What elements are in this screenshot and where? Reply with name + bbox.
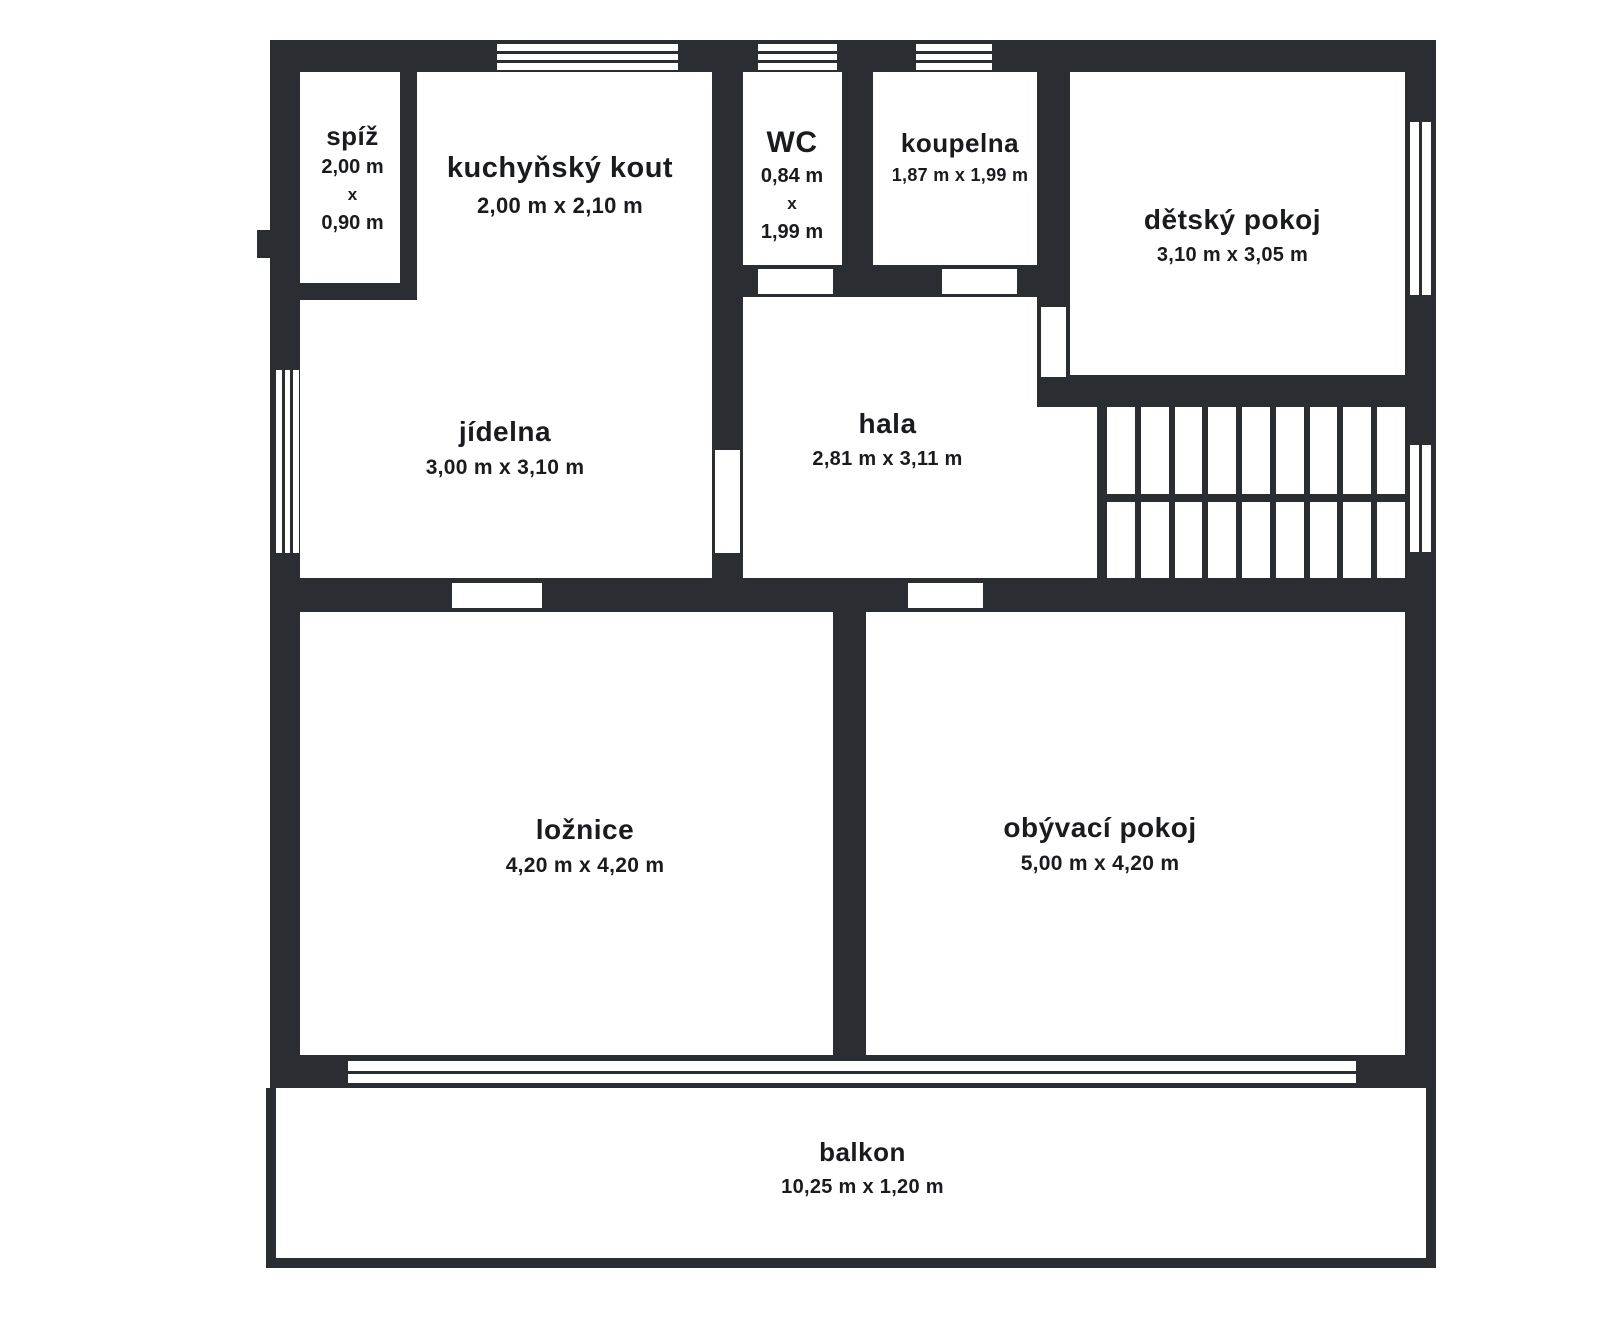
door-opening-jidelna-loznice xyxy=(452,583,542,608)
stair-tread xyxy=(1310,407,1338,494)
wall-loznice-obyvaci xyxy=(833,612,866,1055)
stair-tread xyxy=(1377,502,1405,578)
wall-outer-top xyxy=(270,40,1436,72)
balcony-rail-left xyxy=(266,1088,276,1268)
stair-tread xyxy=(1141,407,1169,494)
balcony-rail-bottom xyxy=(266,1258,1436,1268)
wall-middle xyxy=(270,578,1436,612)
window-koupelna xyxy=(916,44,992,70)
room-label-loznice: ložnice 4,20 m x 4,20 m xyxy=(455,812,715,879)
room-name: obývací pokoj xyxy=(945,810,1255,845)
room-label-detsky-pokoj: dětský pokoj 3,10 m x 3,05 m xyxy=(1105,202,1360,268)
window-kuchynsky-kout xyxy=(497,44,678,70)
stair-flight-upper xyxy=(1107,407,1405,494)
floor-plan-canvas: spíž 2,00 m x 0,90 m kuchyňský kout 2,00… xyxy=(0,0,1600,1344)
room-name: dětský pokoj xyxy=(1105,202,1360,237)
stair-landing-line xyxy=(1107,494,1405,502)
stair-tread xyxy=(1175,407,1203,494)
room-label-hala: hala 2,81 m x 3,11 m xyxy=(795,406,980,472)
room-label-wc: WC 0,84 m x 1,99 m xyxy=(742,124,842,246)
door-opening-hala-obyvaci xyxy=(908,583,983,608)
stair-tread xyxy=(1276,407,1304,494)
door-opening-wc xyxy=(758,269,833,294)
stair-tread xyxy=(1343,407,1371,494)
stair-tread xyxy=(1242,407,1270,494)
room-label-kuchynsky-kout: kuchyňský kout 2,00 m x 2,10 m xyxy=(395,150,725,220)
wall-chimney-stub xyxy=(257,230,276,258)
room-name: balkon xyxy=(720,1136,1005,1169)
room-name: koupelna xyxy=(865,127,1055,160)
window-detsky-pokoj xyxy=(1410,122,1431,295)
room-name: spíž xyxy=(285,120,420,153)
staircase xyxy=(1107,407,1405,578)
room-dims: x xyxy=(742,190,842,218)
room-dims: 3,10 m x 3,05 m xyxy=(1105,243,1360,268)
room-name: ložnice xyxy=(455,812,715,847)
room-dims: 4,20 m x 4,20 m xyxy=(455,853,715,879)
room-dims: 1,99 m xyxy=(742,218,842,246)
door-opening-jidelna-hala xyxy=(715,450,740,553)
room-dims: 5,00 m x 4,20 m xyxy=(945,851,1255,877)
wall-detsky-bottom xyxy=(1037,375,1436,407)
room-label-balkon: balkon 10,25 m x 1,20 m xyxy=(720,1136,1005,1200)
stair-tread xyxy=(1377,407,1405,494)
stair-tread xyxy=(1276,502,1304,578)
stair-tread xyxy=(1141,502,1169,578)
stair-tread xyxy=(1343,502,1371,578)
window-balcony-doors xyxy=(348,1061,1356,1083)
room-dims: 1,87 m x 1,99 m xyxy=(865,164,1055,187)
room-name: kuchyňský kout xyxy=(395,150,725,186)
stair-tread xyxy=(1208,407,1236,494)
room-label-jidelna: jídelna 3,00 m x 3,10 m xyxy=(395,414,615,481)
room-name: WC xyxy=(742,124,842,162)
room-dims: 0,84 m xyxy=(742,162,842,190)
window-stairs xyxy=(1410,445,1431,552)
room-dims: 2,00 m x 2,10 m xyxy=(395,192,725,220)
stair-tread xyxy=(1107,407,1135,494)
room-label-koupelna: koupelna 1,87 m x 1,99 m xyxy=(865,127,1055,186)
stair-tread xyxy=(1107,502,1135,578)
stair-tread xyxy=(1175,502,1203,578)
room-dims: 10,25 m x 1,20 m xyxy=(720,1175,1005,1200)
window-jidelna xyxy=(276,370,299,553)
window-wc xyxy=(758,44,837,70)
wall-spiz-bottom xyxy=(297,283,417,300)
wall-stairs-left-edge xyxy=(1097,407,1107,578)
room-name: jídelna xyxy=(395,414,615,449)
room-label-obyvaci-pokoj: obývací pokoj 5,00 m x 4,20 m xyxy=(945,810,1255,877)
stair-tread xyxy=(1208,502,1236,578)
room-name: hala xyxy=(795,406,980,441)
balcony-rail-right xyxy=(1426,1088,1436,1268)
stair-tread xyxy=(1310,502,1338,578)
stair-tread xyxy=(1242,502,1270,578)
room-dims: 3,00 m x 3,10 m xyxy=(395,455,615,481)
room-dims: 2,81 m x 3,11 m xyxy=(795,447,980,472)
stair-flight-lower xyxy=(1107,502,1405,578)
door-opening-hala-detsky xyxy=(1041,307,1066,377)
door-opening-koupelna xyxy=(942,269,1017,294)
